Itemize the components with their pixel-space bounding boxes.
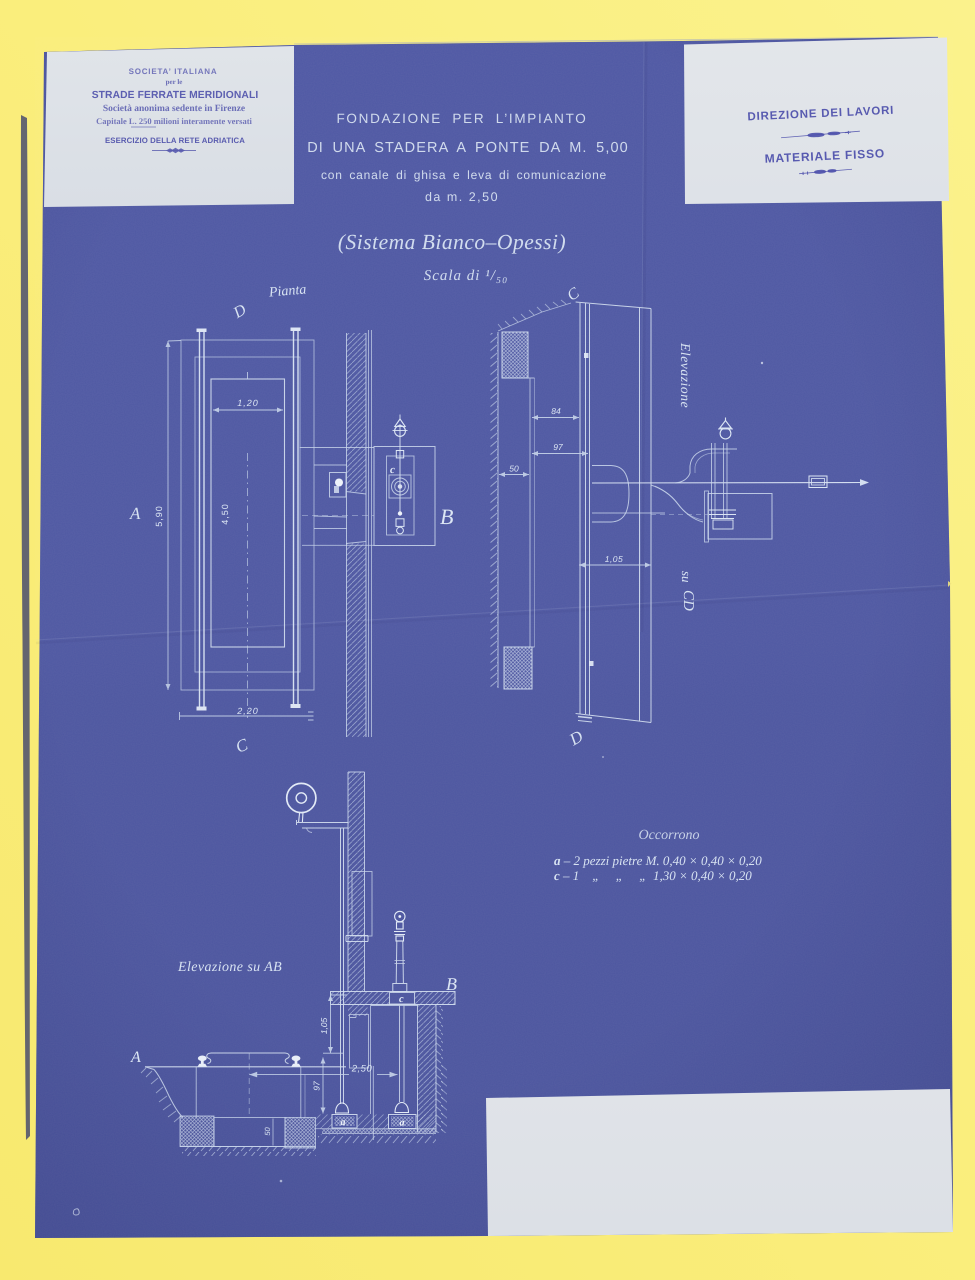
svg-text:c: c bbox=[399, 994, 404, 1005]
svg-text:84: 84 bbox=[551, 406, 561, 416]
svg-text:1,05: 1,05 bbox=[319, 1017, 329, 1034]
svg-text:Capitale L. 250 milioni intera: Capitale L. 250 milioni interamente vers… bbox=[96, 116, 252, 126]
svg-text:A: A bbox=[130, 1049, 141, 1066]
svg-text:STRADE FERRATE MERIDIONALI: STRADE FERRATE MERIDIONALI bbox=[92, 90, 259, 101]
svg-text:Elevazione su AB: Elevazione su AB bbox=[177, 960, 282, 975]
svg-text:1,05: 1,05 bbox=[605, 554, 624, 564]
svg-text:A: A bbox=[129, 504, 141, 523]
svg-text:da m. 2,50: da m. 2,50 bbox=[425, 190, 499, 204]
svg-text:SOCIETA’ ITALIANA: SOCIETA’ ITALIANA bbox=[129, 67, 218, 76]
svg-text:B: B bbox=[440, 504, 453, 529]
svg-text:c – 1 „ „ „ 1,30 ×: c – 1 „ „ „ 1,30 × 0,40 × 0,20 bbox=[554, 868, 752, 883]
svg-text:c: c bbox=[390, 464, 395, 476]
svg-text:Scala di ¹/₅₀: Scala di ¹/₅₀ bbox=[424, 268, 509, 284]
svg-text:per le: per le bbox=[166, 78, 183, 86]
svg-text:con canale di ghisa e leva di: con canale di ghisa e leva di comunicazi… bbox=[321, 168, 607, 182]
svg-text:a: a bbox=[341, 1117, 346, 1128]
svg-text:a: a bbox=[400, 1118, 405, 1129]
svg-text:DI UNA STADERA A PONTE DA M. 5: DI UNA STADERA A PONTE DA M. 5,00 bbox=[307, 140, 629, 156]
svg-text:B: B bbox=[446, 974, 457, 994]
svg-text:su: su bbox=[679, 571, 694, 583]
svg-text:Occorrono: Occorrono bbox=[639, 828, 700, 843]
svg-text:1,20: 1,20 bbox=[237, 398, 259, 408]
svg-text:50: 50 bbox=[509, 464, 519, 474]
svg-text:4,50: 4,50 bbox=[220, 503, 230, 525]
svg-text:(Sistema Bianco–Opessi): (Sistema Bianco–Opessi) bbox=[338, 230, 566, 254]
svg-text:Elevazione: Elevazione bbox=[678, 342, 693, 408]
svg-text:97: 97 bbox=[312, 1081, 322, 1091]
svg-text:FONDAZIONE PER L’IMPIANTO: FONDAZIONE PER L’IMPIANTO bbox=[336, 111, 587, 126]
svg-text:5,90: 5,90 bbox=[154, 505, 164, 527]
svg-text:CD: CD bbox=[680, 590, 696, 611]
svg-text:a – 2 pezzi pietre M. 0,40 × 0: a – 2 pezzi pietre M. 0,40 × 0,40 × 0,20 bbox=[554, 853, 762, 868]
svg-text:Società anonima sedente in Fir: Società anonima sedente in Firenze bbox=[103, 104, 245, 114]
svg-text:2,50: 2,50 bbox=[351, 1064, 373, 1075]
svg-text:97: 97 bbox=[553, 442, 563, 452]
svg-text:2,20: 2,20 bbox=[236, 706, 259, 716]
svg-text:ESERCIZIO DELLA RETE ADRIATICA: ESERCIZIO DELLA RETE ADRIATICA bbox=[105, 136, 245, 145]
svg-text:50: 50 bbox=[263, 1127, 272, 1136]
